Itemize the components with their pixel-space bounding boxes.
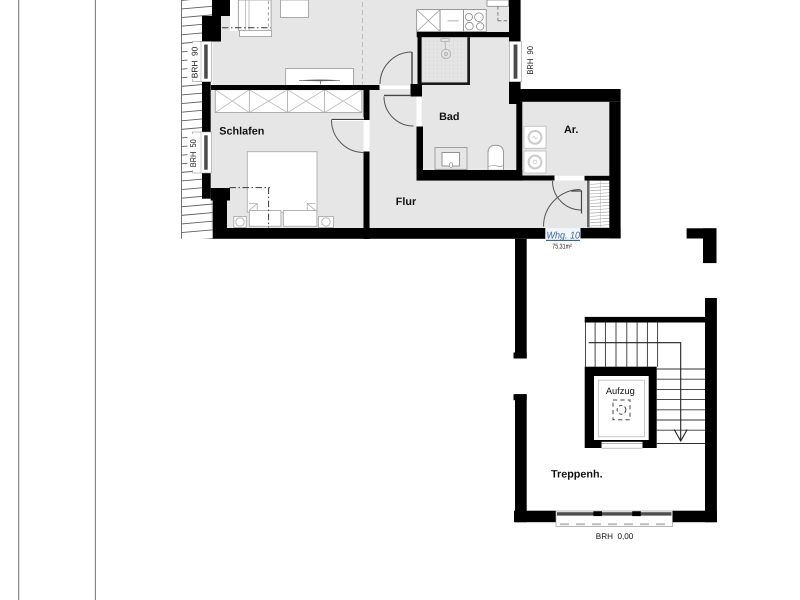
svg-text:BRH 0,00: BRH 0,00 [596, 532, 634, 541]
svg-text:BRH 90: BRH 90 [525, 46, 535, 75]
svg-text:Ar.: Ar. [564, 124, 578, 136]
svg-text:Bad: Bad [439, 111, 459, 123]
svg-text:BRH 50: BRH 50 [188, 139, 198, 167]
svg-text:75,31m²: 75,31m² [552, 243, 572, 250]
svg-text:Whg. 10: Whg. 10 [547, 230, 581, 241]
svg-text:Treppenh.: Treppenh. [551, 469, 603, 481]
svg-text:Flur: Flur [396, 196, 417, 208]
svg-text:Schlafen: Schlafen [219, 126, 264, 138]
svg-text:BRH 90: BRH 90 [190, 46, 200, 78]
svg-text:Aufzug: Aufzug [606, 386, 635, 396]
